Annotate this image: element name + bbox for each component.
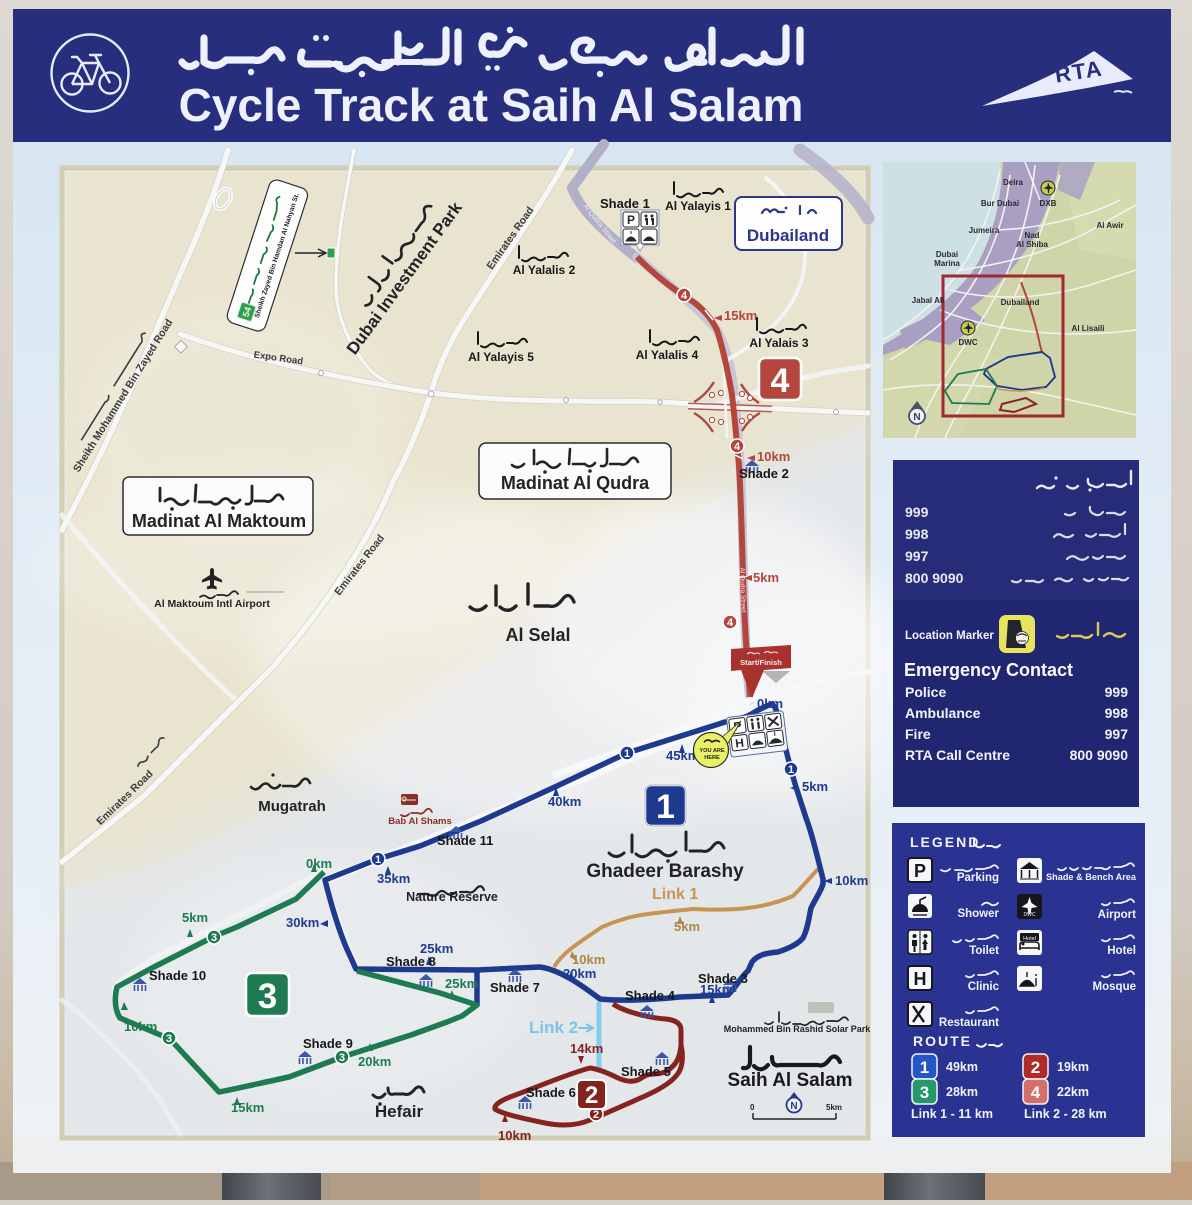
svg-text:5km: 5km — [674, 919, 700, 934]
svg-text:10km: 10km — [757, 449, 790, 464]
svg-text:Al Yalais 3: Al Yalais 3 — [749, 336, 808, 350]
svg-text:Mugatrah: Mugatrah — [258, 798, 326, 815]
svg-text:0: 0 — [750, 1103, 755, 1112]
svg-text:30km: 30km — [286, 915, 319, 930]
svg-text:Shade 6: Shade 6 — [526, 1085, 576, 1100]
svg-text:Restaurant: Restaurant — [939, 1017, 999, 1029]
svg-text:4: 4 — [681, 290, 688, 302]
svg-text:Link 2: Link 2 — [529, 1018, 578, 1037]
svg-text:Deira: Deira — [1003, 178, 1024, 187]
svg-text:Dubai: Dubai — [936, 250, 958, 259]
svg-text:4: 4 — [771, 362, 790, 400]
svg-text:35km: 35km — [377, 871, 410, 886]
svg-text:5km: 5km — [753, 570, 779, 585]
svg-text:20km: 20km — [358, 1054, 391, 1069]
svg-text:Hefair: Hefair — [375, 1102, 424, 1121]
svg-text:Al Shiba: Al Shiba — [1016, 240, 1049, 249]
svg-text:Jabal Ali: Jabal Ali — [912, 296, 945, 305]
svg-text:Mohammed Bin Rashid Solar Park: Mohammed Bin Rashid Solar Park — [724, 1024, 872, 1034]
svg-text:997: 997 — [905, 548, 929, 564]
svg-text:Nature Reserve: Nature Reserve — [406, 890, 498, 904]
svg-text:Shower: Shower — [957, 908, 999, 920]
svg-text:Dubailand: Dubailand — [1001, 298, 1040, 307]
svg-text:Madinat Al Maktoum: Madinat Al Maktoum — [132, 511, 306, 531]
svg-text:Ambulance: Ambulance — [905, 705, 981, 721]
svg-text:DWC: DWC — [207, 585, 218, 590]
svg-text:998: 998 — [905, 526, 929, 542]
svg-text:Al Yalalis 2: Al Yalalis 2 — [513, 263, 576, 277]
svg-text:5km: 5km — [802, 779, 828, 794]
svg-text:Saih Al Salam: Saih Al Salam — [728, 1070, 853, 1091]
svg-text:19km: 19km — [1057, 1060, 1089, 1074]
svg-text:Nad: Nad — [1024, 231, 1039, 240]
svg-text:28km: 28km — [946, 1085, 978, 1099]
svg-text:Al Yalayis 1: Al Yalayis 1 — [665, 199, 731, 213]
svg-text:HERE: HERE — [704, 755, 720, 761]
svg-text:3: 3 — [166, 1033, 172, 1045]
svg-text:DXB: DXB — [1040, 199, 1057, 208]
svg-text:3: 3 — [339, 1052, 345, 1064]
svg-text:Al Yalalis 4: Al Yalalis 4 — [636, 348, 699, 362]
svg-text:Al Lisaili: Al Lisaili — [1072, 324, 1105, 333]
svg-text:Al Selal: Al Selal — [505, 625, 570, 645]
svg-text:998: 998 — [1105, 705, 1129, 721]
svg-text:Bab Al Shams: Bab Al Shams — [388, 816, 452, 827]
svg-text:Cycle Track at Saih Al Salam: Cycle Track at Saih Al Salam — [179, 79, 804, 131]
svg-text:49km: 49km — [946, 1060, 978, 1074]
svg-text:800 9090: 800 9090 — [1070, 747, 1129, 763]
svg-text:1: 1 — [920, 1058, 929, 1077]
svg-text:H: H — [914, 969, 927, 989]
svg-text:Link 2 - 28 km: Link 2 - 28 km — [1024, 1107, 1107, 1121]
svg-text:Dubailand: Dubailand — [747, 226, 829, 245]
svg-text:Al Awir: Al Awir — [1096, 221, 1123, 230]
svg-text:Mosque: Mosque — [1093, 981, 1136, 993]
svg-text:Al Maktoum Intl Airport: Al Maktoum Intl Airport — [154, 598, 270, 610]
svg-text:4: 4 — [734, 441, 741, 453]
svg-text:H: H — [734, 736, 744, 751]
svg-text:25km: 25km — [445, 976, 478, 991]
svg-text:20km: 20km — [563, 966, 596, 981]
svg-text:Bur Dubai: Bur Dubai — [981, 199, 1019, 208]
svg-text:5km: 5km — [826, 1103, 842, 1112]
svg-text:Airport: Airport — [1098, 909, 1137, 921]
svg-text:Fire: Fire — [905, 726, 931, 742]
svg-text:Parking: Parking — [957, 872, 999, 884]
svg-text:Marina: Marina — [934, 259, 960, 268]
svg-text:Shade 10: Shade 10 — [149, 968, 206, 983]
svg-text:Shade 5: Shade 5 — [621, 1064, 671, 1079]
svg-text:2: 2 — [585, 1082, 598, 1109]
svg-text:1: 1 — [656, 788, 675, 826]
svg-text:Shade 1: Shade 1 — [600, 196, 650, 211]
svg-text:Shade 3: Shade 3 — [698, 971, 748, 986]
svg-text:999: 999 — [905, 504, 929, 520]
svg-text:ROUTE: ROUTE — [913, 1033, 972, 1049]
svg-text:10km: 10km — [498, 1128, 531, 1143]
svg-text:10km: 10km — [835, 873, 868, 888]
svg-text:DWC: DWC — [1024, 912, 1036, 918]
svg-text:Madinat Al Qudra: Madinat Al Qudra — [501, 473, 650, 493]
svg-text:Start/Finish: Start/Finish — [740, 658, 782, 667]
svg-text:N: N — [790, 1101, 797, 1112]
svg-text:5km: 5km — [182, 910, 208, 925]
svg-text:P: P — [914, 861, 926, 881]
svg-text:22km: 22km — [1057, 1085, 1089, 1099]
svg-text:999: 999 — [1105, 684, 1129, 700]
svg-text:10km: 10km — [124, 1019, 157, 1034]
svg-text:Shade 9: Shade 9 — [303, 1036, 353, 1051]
svg-text:Toilet: Toilet — [969, 945, 999, 957]
svg-text:N: N — [913, 412, 920, 423]
svg-text:Ghadeer Barashy: Ghadeer Barashy — [586, 861, 744, 882]
svg-text:Link 1: Link 1 — [652, 886, 698, 903]
svg-text:14km: 14km — [570, 1041, 603, 1056]
svg-text:Police: Police — [905, 684, 946, 700]
svg-text:Clinic: Clinic — [968, 981, 1000, 993]
svg-text:Al Yalayis 5: Al Yalayis 5 — [468, 350, 534, 364]
svg-text:Hotel: Hotel — [1023, 936, 1036, 942]
svg-text:Hotel: Hotel — [1107, 945, 1136, 957]
svg-text:Location Marker: Location Marker — [905, 630, 994, 642]
svg-text:997: 997 — [1105, 726, 1129, 742]
svg-text:Shade 7: Shade 7 — [490, 980, 540, 995]
svg-text:3: 3 — [211, 932, 217, 944]
svg-text:YOU ARE: YOU ARE — [699, 748, 725, 754]
svg-text:1: 1 — [624, 748, 630, 760]
svg-text:3: 3 — [258, 977, 277, 1016]
svg-text:Jumeira: Jumeira — [969, 226, 1000, 235]
svg-text:P: P — [627, 213, 635, 227]
svg-text:RTA Call Centre: RTA Call Centre — [905, 747, 1010, 763]
svg-text:2: 2 — [1031, 1058, 1040, 1077]
svg-text:40km: 40km — [548, 794, 581, 809]
svg-text:15km: 15km — [231, 1100, 264, 1115]
svg-text:3: 3 — [920, 1083, 929, 1102]
svg-text:0km: 0km — [757, 696, 783, 711]
svg-text:Shade 11: Shade 11 — [437, 833, 493, 848]
svg-text:0km: 0km — [306, 856, 332, 871]
svg-text:Link 1 - 11 km: Link 1 - 11 km — [911, 1107, 993, 1121]
svg-text:LEGEND: LEGEND — [910, 834, 980, 850]
svg-text:800 9090: 800 9090 — [905, 570, 964, 586]
svg-text:2: 2 — [593, 1109, 599, 1121]
svg-text:4: 4 — [1031, 1083, 1041, 1102]
svg-text:1: 1 — [788, 764, 794, 776]
svg-text:DWC: DWC — [958, 338, 977, 347]
svg-text:10km: 10km — [572, 952, 605, 967]
svg-text:Shade 8: Shade 8 — [386, 954, 436, 969]
svg-text:Emergency Contact: Emergency Contact — [904, 660, 1073, 680]
svg-text:1: 1 — [375, 854, 381, 866]
svg-text:15km: 15km — [724, 308, 757, 323]
svg-text:Shade & Bench Area: Shade & Bench Area — [1046, 872, 1137, 882]
svg-text:Shade 4: Shade 4 — [625, 988, 676, 1003]
svg-text:Shade 2: Shade 2 — [739, 466, 789, 481]
svg-text:4: 4 — [727, 617, 734, 629]
